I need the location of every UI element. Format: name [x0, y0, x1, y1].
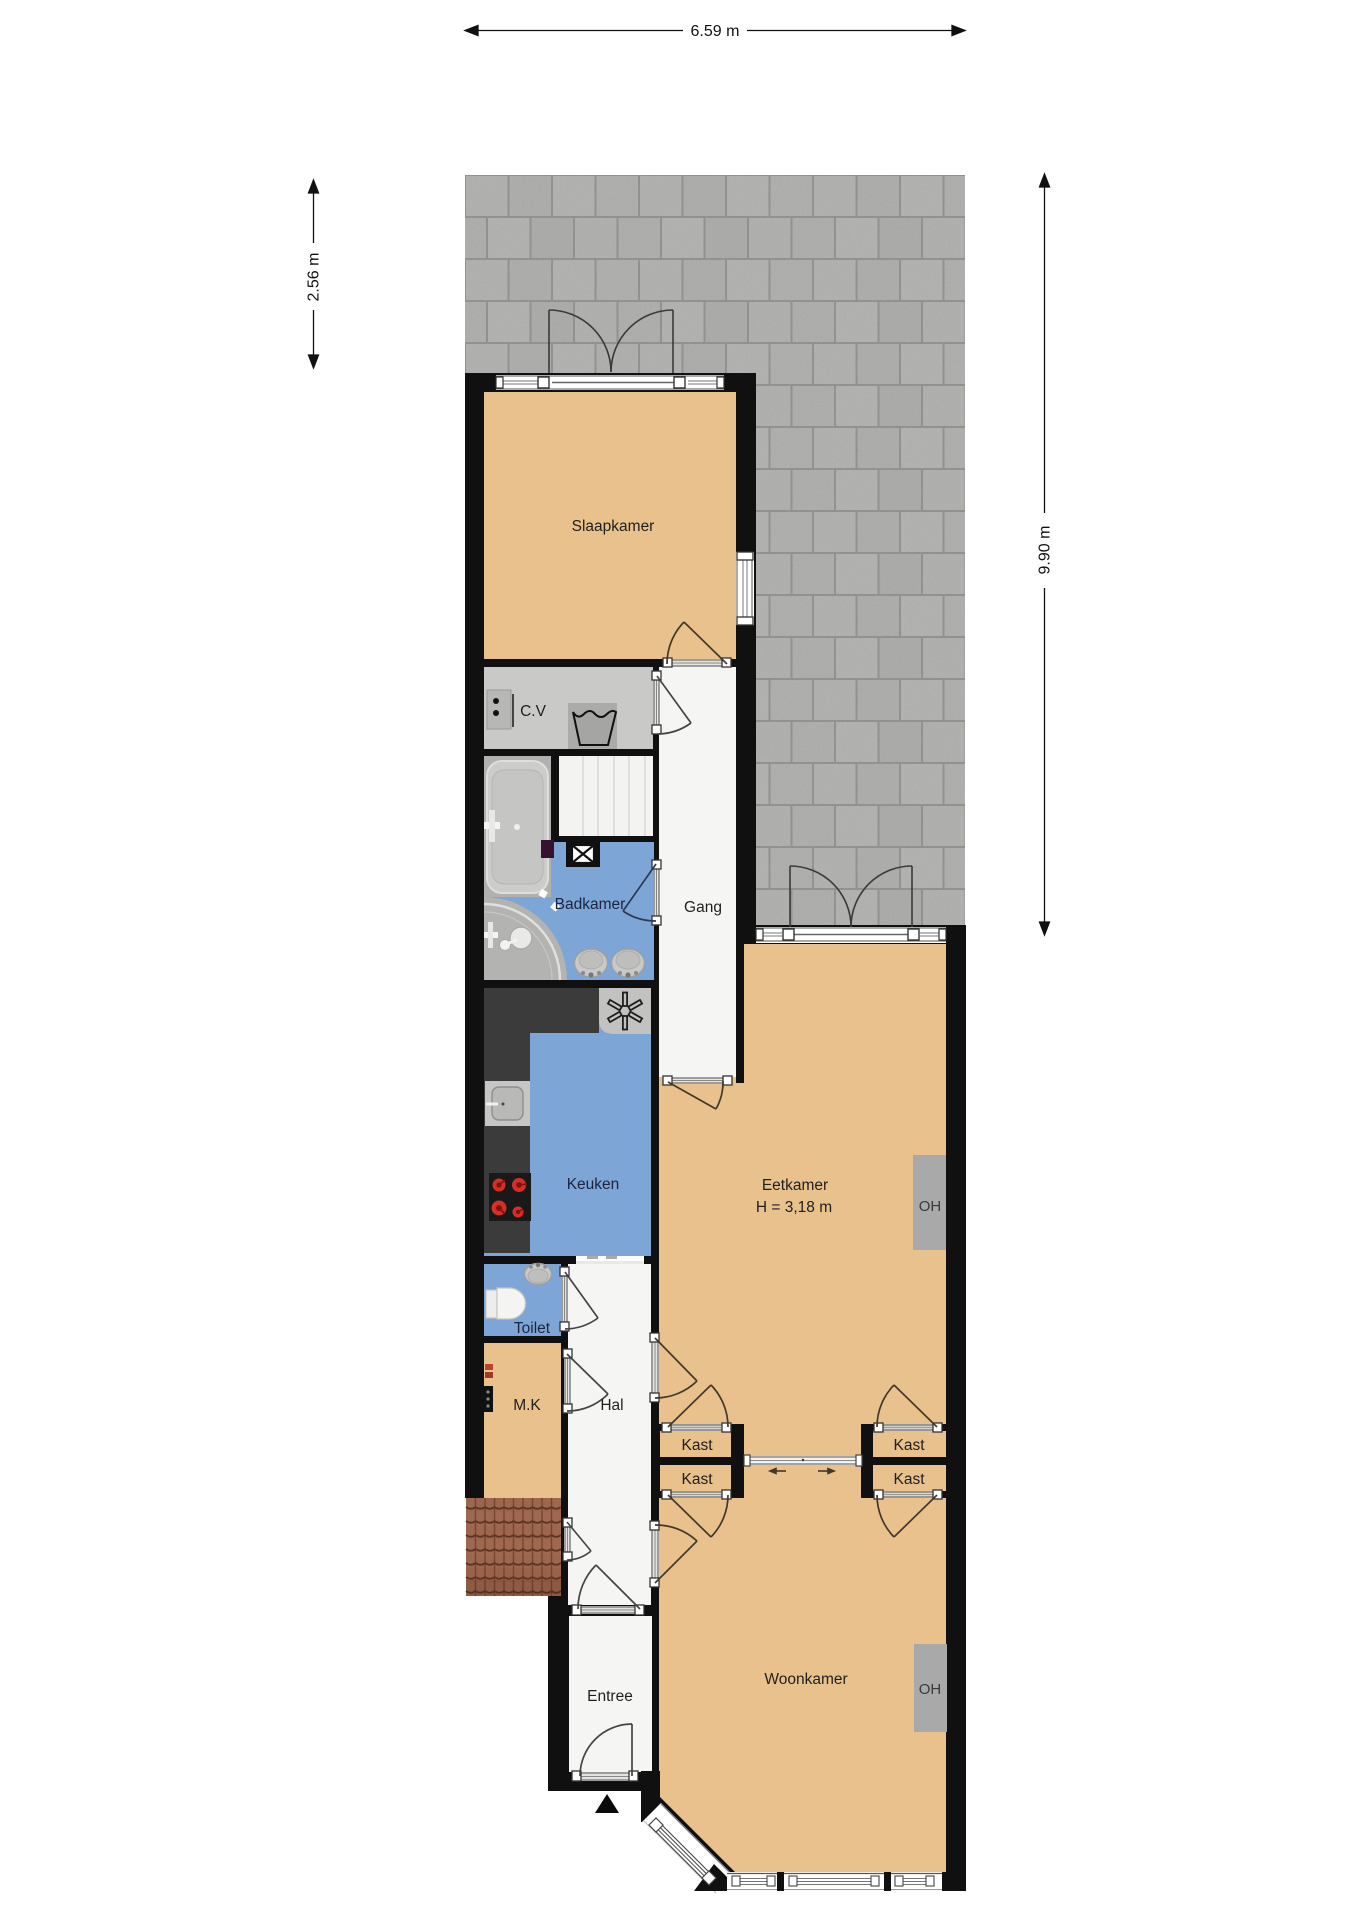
- svg-text:6.59 m: 6.59 m: [691, 23, 740, 40]
- svg-text:Slaapkamer: Slaapkamer: [572, 518, 655, 535]
- svg-text:Entree: Entree: [587, 1688, 633, 1705]
- svg-text:9.90 m: 9.90 m: [1037, 526, 1054, 575]
- svg-text:C.V: C.V: [520, 703, 547, 720]
- svg-text:Eetkamer: Eetkamer: [762, 1177, 828, 1194]
- svg-text:2.56 m: 2.56 m: [306, 253, 323, 302]
- svg-text:Woonkamer: Woonkamer: [764, 1671, 847, 1688]
- svg-text:Hal: Hal: [600, 1397, 623, 1414]
- svg-text:H = 3,18 m: H = 3,18 m: [756, 1199, 832, 1216]
- svg-text:OH: OH: [919, 1681, 942, 1698]
- svg-text:Kast: Kast: [893, 1437, 925, 1454]
- svg-text:Kast: Kast: [681, 1471, 713, 1488]
- svg-text:Keuken: Keuken: [567, 1176, 620, 1193]
- svg-text:Toilet: Toilet: [514, 1320, 551, 1337]
- svg-text:Kast: Kast: [681, 1437, 713, 1454]
- svg-text:OH: OH: [919, 1198, 942, 1215]
- svg-text:Kast: Kast: [893, 1471, 925, 1488]
- svg-text:Gang: Gang: [684, 899, 722, 916]
- svg-text:M.K: M.K: [513, 1397, 541, 1414]
- svg-text:Badkamer: Badkamer: [555, 896, 626, 913]
